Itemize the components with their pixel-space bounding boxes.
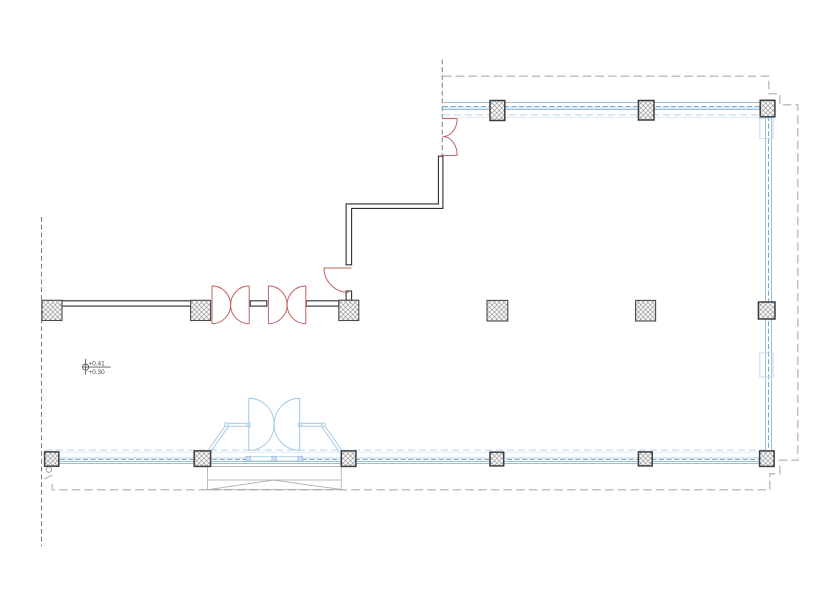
svg-text:+0.30: +0.30	[89, 369, 106, 376]
svg-text:+0.41: +0.41	[89, 361, 106, 368]
